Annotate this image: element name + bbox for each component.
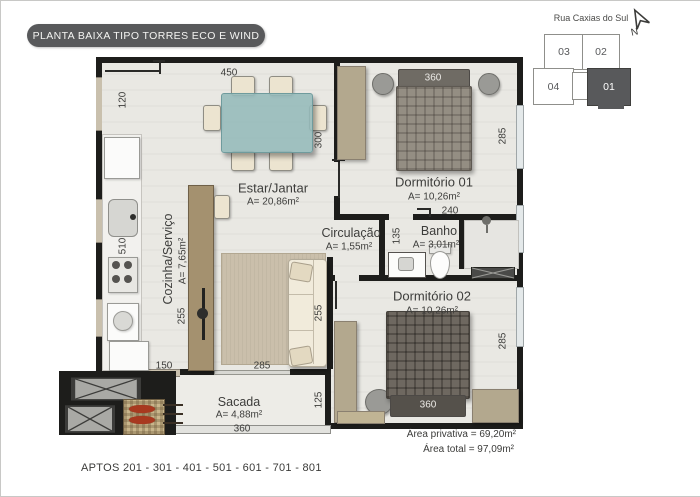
room-area-banho: A= 3,01m² <box>413 240 459 251</box>
bed-dorm2 <box>386 311 470 399</box>
room-label-dorm2: Dormitório 02 <box>393 289 471 304</box>
room-label-cozinha: Cozinha/Serviço <box>161 213 175 304</box>
floor-plan-page: PLANTA BAIXA TIPO TORRES ECO E WIND Rua … <box>0 0 700 497</box>
barbecue-skewer-food <box>129 405 155 413</box>
wall-sacada-right <box>325 375 331 427</box>
north-arrow-icon <box>627 6 651 30</box>
dim-150: 150 <box>156 361 173 372</box>
wardrobe-dorm1 <box>337 66 366 160</box>
entry-door-stop <box>159 61 161 74</box>
room-label-sacada: Sacada <box>218 395 260 409</box>
window-left-top <box>96 77 102 131</box>
room-area-sacada: A= 4,88m² <box>216 410 262 421</box>
bathroom-sink <box>398 257 414 271</box>
dim-240: 240 <box>442 206 459 217</box>
dim-135: 135 <box>392 228 403 245</box>
room-area-circulacao: A= 1,55m² <box>326 242 372 253</box>
dim-120: 120 <box>118 92 129 109</box>
banho-door-stop <box>429 208 431 217</box>
dining-chair <box>269 151 293 171</box>
dining-chair <box>203 105 221 131</box>
sofa-cushion-line <box>289 330 313 331</box>
room-area-dorm2: A= 10,26m² <box>406 306 458 317</box>
stove-burner <box>124 275 132 283</box>
elevator-shaft <box>71 377 141 401</box>
wall-sacada-band-3 <box>290 369 331 375</box>
key-plan-unit-02[interactable]: 02 <box>582 34 620 70</box>
dim-510: 510 <box>118 238 129 255</box>
elevator-shaft <box>65 405 115 433</box>
faucet <box>130 214 136 220</box>
key-plan-unit-03[interactable]: 03 <box>544 34 584 70</box>
sofa-cushion-line <box>289 294 313 295</box>
dim-285-dorm1: 285 <box>498 128 509 145</box>
room-label-dorm1: Dormitório 01 <box>395 175 473 190</box>
stove-burner <box>112 275 120 283</box>
wardrobe-dorm2 <box>334 321 357 423</box>
sofa-pillow <box>289 261 314 283</box>
fridge <box>104 137 140 179</box>
desk-chair <box>214 195 230 219</box>
room-label-circulacao: Circulação <box>321 226 380 240</box>
dim-285-dorm2: 285 <box>498 333 509 350</box>
shower-stall <box>464 220 519 269</box>
wall-living-dorm2 <box>327 257 333 369</box>
aptos-list: APTOS 201 - 301 - 401 - 501 - 601 - 701 … <box>81 462 322 474</box>
skewer-handle <box>163 422 183 424</box>
sofa-pillow <box>289 345 314 367</box>
dim-360-dorm1: 360 <box>425 73 442 84</box>
window-dorm2 <box>516 287 524 347</box>
tv-panel <box>188 185 214 371</box>
nightstand <box>372 73 394 95</box>
key-plan-unit-04[interactable]: 04 <box>533 68 574 105</box>
dim-125: 125 <box>314 392 325 409</box>
dining-table <box>221 93 313 153</box>
room-area-dorm1: A= 10,26m² <box>408 192 460 203</box>
barbecue-skewer-food <box>129 416 155 424</box>
window-dorm1 <box>516 105 524 169</box>
stove-burner <box>112 261 120 269</box>
skewer-handle <box>163 404 183 406</box>
dim-285-living: 285 <box>254 361 271 372</box>
bed-dorm1 <box>396 86 472 171</box>
stove-burner <box>124 261 132 269</box>
dresser-dorm2 <box>337 411 385 424</box>
dining-chair <box>231 151 255 171</box>
desk-dorm2 <box>472 389 519 423</box>
dorm2-door-leaf <box>335 281 337 309</box>
dim-450: 450 <box>221 68 238 79</box>
skewer-handle <box>163 413 183 415</box>
shower-arm <box>486 225 488 233</box>
dim-360-dorm2: 360 <box>420 400 437 411</box>
dim-360-sacada: 360 <box>234 424 251 435</box>
room-label-estar: Estar/Jantar <box>238 181 308 196</box>
washer-door <box>113 311 133 331</box>
laundry-tub <box>109 341 149 371</box>
key-plan-unit-01-tab <box>598 104 624 109</box>
entry-door-leaf <box>105 70 161 72</box>
vent-shaft <box>471 267 515 279</box>
entry-door-stop-bar <box>153 60 165 62</box>
area-privativa: Área privativa = 69,20m² <box>407 429 516 440</box>
dorm1-door-leaf <box>338 162 340 198</box>
dim-255-right: 255 <box>314 305 325 322</box>
area-total: Área total = 97,09m² <box>423 444 514 455</box>
dim-255-left: 255 <box>177 308 188 325</box>
room-area-estar: A= 20,86m² <box>247 197 299 208</box>
plan-title: PLANTA BAIXA TIPO TORRES ECO E WIND <box>27 24 265 47</box>
tv-mount <box>197 308 208 319</box>
wall-dorm2-top-a <box>327 275 335 281</box>
key-plan-unit-01-selected[interactable]: 01 <box>587 68 631 106</box>
nightstand <box>478 73 500 95</box>
room-area-cozinha: A= 7,65m² <box>178 238 189 284</box>
dim-300: 300 <box>314 132 325 149</box>
room-label-banho: Banho <box>421 224 457 238</box>
shower-head-icon <box>482 216 491 225</box>
